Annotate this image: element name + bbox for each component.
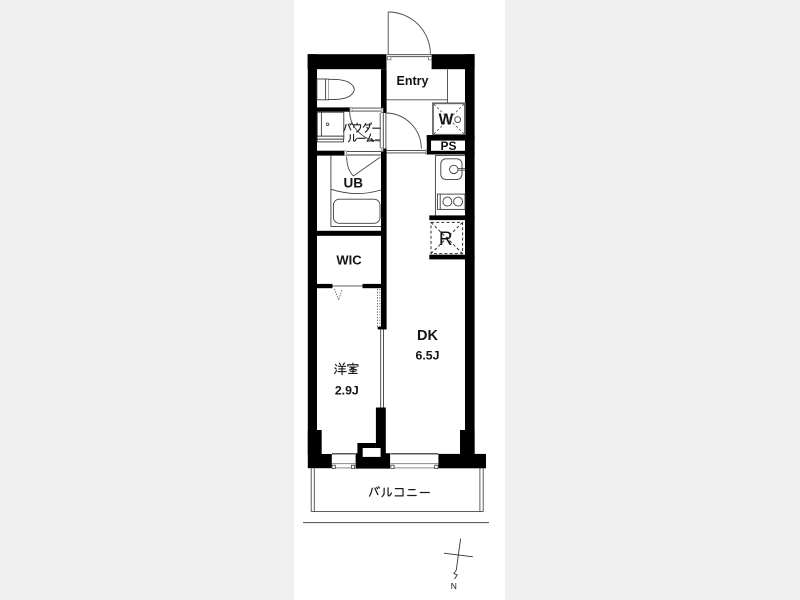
svg-text:WIC: WIC (336, 253, 362, 268)
svg-text:UB: UB (344, 176, 364, 191)
svg-text:R: R (439, 229, 453, 250)
svg-text:DK: DK (417, 328, 438, 344)
svg-text:6.5J: 6.5J (416, 349, 440, 363)
svg-text:N: N (451, 581, 457, 591)
svg-text:Entry: Entry (397, 74, 429, 88)
svg-text:2.9J: 2.9J (335, 384, 359, 398)
svg-text:W: W (439, 112, 454, 129)
